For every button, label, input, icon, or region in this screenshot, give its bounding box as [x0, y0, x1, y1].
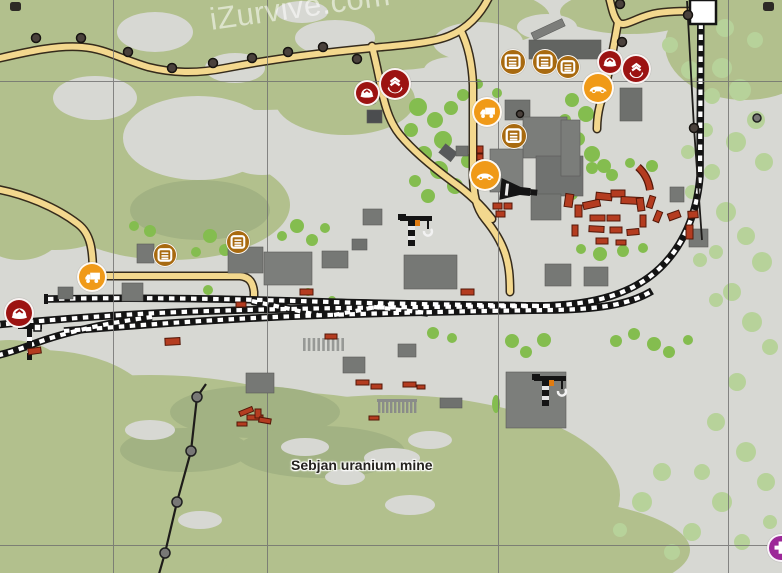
truck-icon [83, 268, 102, 287]
garage-door-icon [504, 53, 521, 70]
medical-cross-icon [772, 539, 782, 556]
marker-garage-6[interactable] [501, 123, 527, 149]
car-icon [475, 165, 495, 185]
rank-chevron-icon [385, 74, 405, 94]
marker-garage-2[interactable] [532, 49, 558, 75]
car-icon [588, 78, 608, 98]
garage-door-icon [157, 247, 173, 263]
marker-military-2[interactable] [379, 68, 411, 100]
marker-truck-1[interactable] [77, 262, 107, 292]
map-canvas[interactable]: iZurvive.com Sebjan uranium mine [0, 0, 782, 573]
rail-crossing [690, 0, 716, 24]
marker-military-5[interactable] [4, 298, 34, 328]
truck-icon [478, 103, 497, 122]
marker-military-3[interactable] [597, 49, 623, 75]
marker-truck-2[interactable] [472, 97, 502, 127]
marker-garage-1[interactable] [500, 49, 526, 75]
marker-garage-3[interactable] [556, 55, 580, 79]
marker-garage-5[interactable] [226, 230, 250, 254]
garage-door-icon [505, 127, 522, 144]
marker-car-2[interactable] [582, 72, 614, 104]
crane-icon [398, 214, 432, 246]
helmet-icon [602, 54, 618, 70]
garage-door-icon [560, 59, 576, 75]
marker-military-1[interactable] [354, 80, 380, 106]
rank-chevron-icon [627, 60, 646, 79]
helmet-icon [10, 304, 29, 323]
garage-door-icon [536, 53, 553, 70]
place-label: Sebjan uranium mine [291, 457, 433, 473]
marker-car-1[interactable] [469, 159, 501, 191]
marker-military-4[interactable] [621, 54, 651, 84]
marker-garage-4[interactable] [153, 243, 177, 267]
helmet-icon [359, 85, 375, 101]
garage-door-icon [230, 234, 246, 250]
